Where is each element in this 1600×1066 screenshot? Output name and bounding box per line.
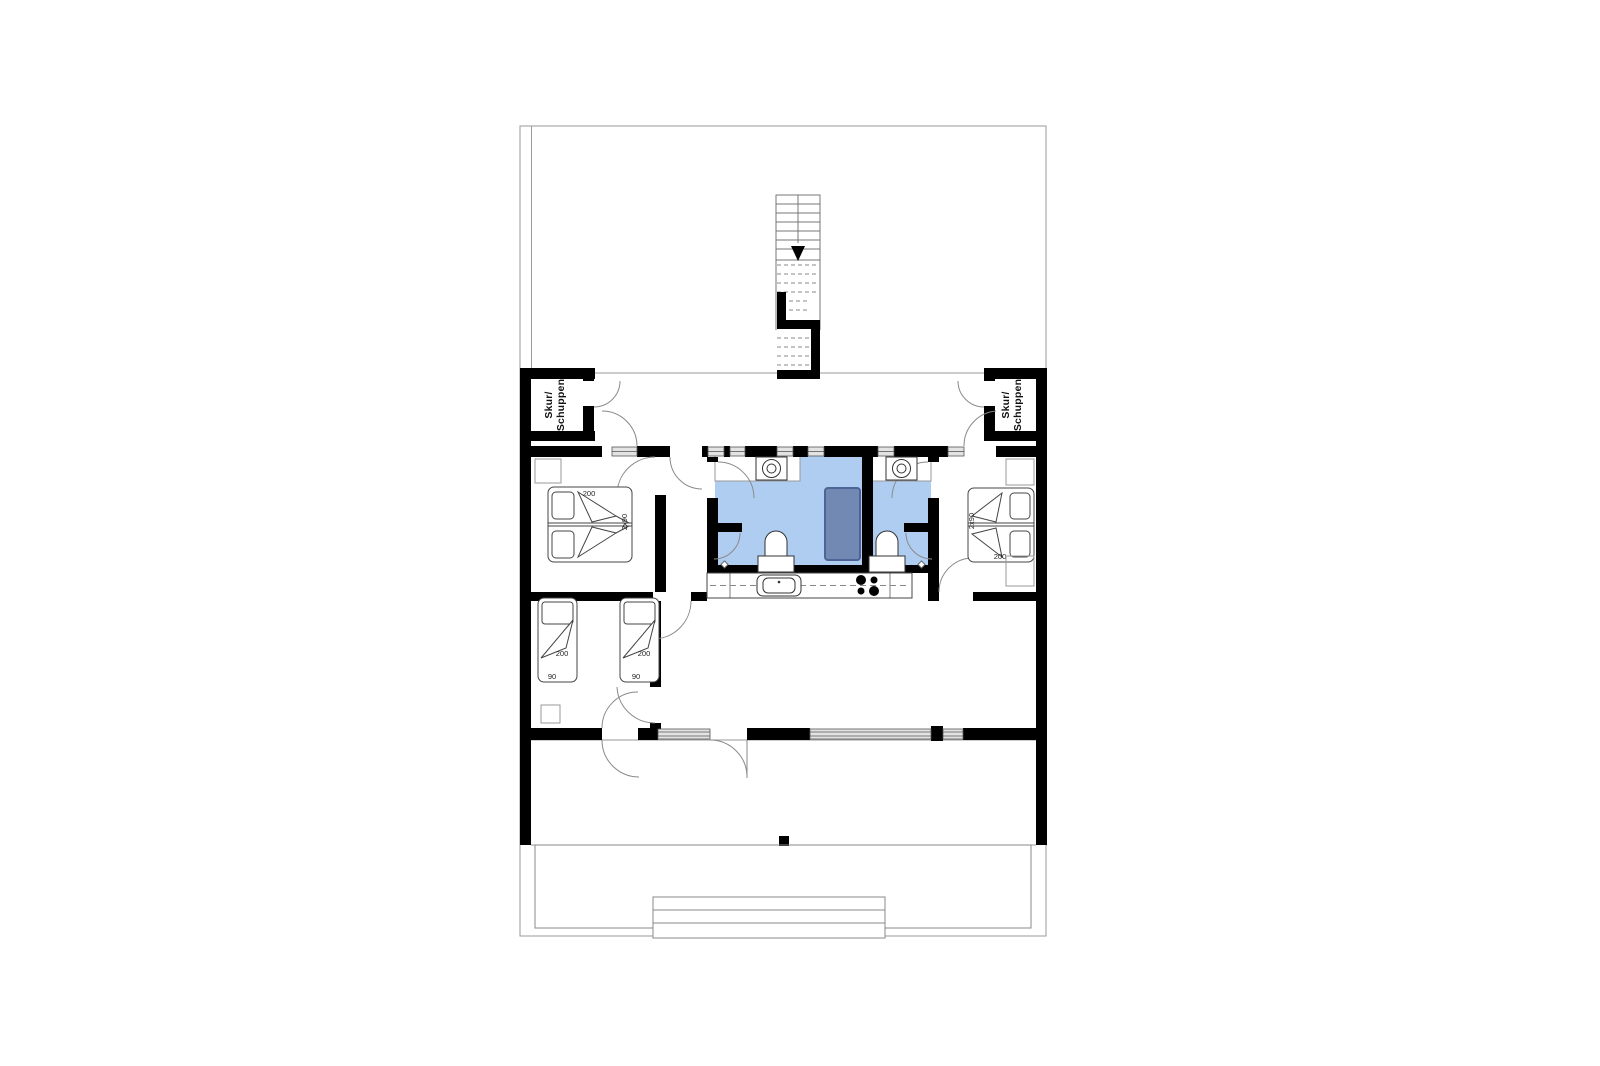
pillow (624, 602, 655, 624)
double-bed-right (968, 488, 1034, 562)
bed-size-label: 200 (638, 649, 651, 658)
terrace-steps (653, 897, 885, 938)
bed-size-label: 2x90 (620, 514, 629, 530)
bed-size-label: 2x90 (967, 513, 976, 529)
single-bed-left (538, 598, 577, 682)
building-walls (520, 368, 1047, 846)
single-bed-right (620, 598, 659, 682)
staircase (776, 195, 820, 379)
terrace (535, 845, 1031, 938)
shed-left-label-line1: Skur/ (543, 391, 555, 418)
bed-size-label: 90 (548, 672, 556, 681)
bed-size-label: 200 (583, 489, 596, 498)
stair-walls (777, 292, 820, 379)
pillow (1010, 493, 1030, 519)
shed-right-label-line1: Skur/ (1000, 391, 1012, 418)
pillow (552, 492, 574, 519)
washbasin-left-icon (756, 457, 787, 480)
bathtub (825, 488, 860, 560)
threshold-lines (531, 740, 1036, 845)
kitchen-counter (707, 573, 912, 598)
floor-plan-drawing: 200 2x90 2x90 200 200 90 200 90 (0, 0, 1600, 1066)
washbasin-right-icon (886, 457, 917, 480)
pillow (552, 531, 574, 558)
bed-size-label: 200 (556, 649, 569, 658)
bed-size-label: 90 (632, 672, 640, 681)
window (612, 447, 637, 456)
kitchen-sink-icon (757, 575, 801, 596)
pillow (1010, 531, 1030, 557)
bed-size-label: 200 (994, 552, 1007, 561)
shed-right-label-line2: Schuppen (1012, 379, 1024, 431)
shed-left-label-line2: Schuppen (555, 379, 567, 431)
floor-plan-page: 200 2x90 2x90 200 200 90 200 90 (0, 0, 1600, 1066)
pillow (542, 602, 573, 624)
